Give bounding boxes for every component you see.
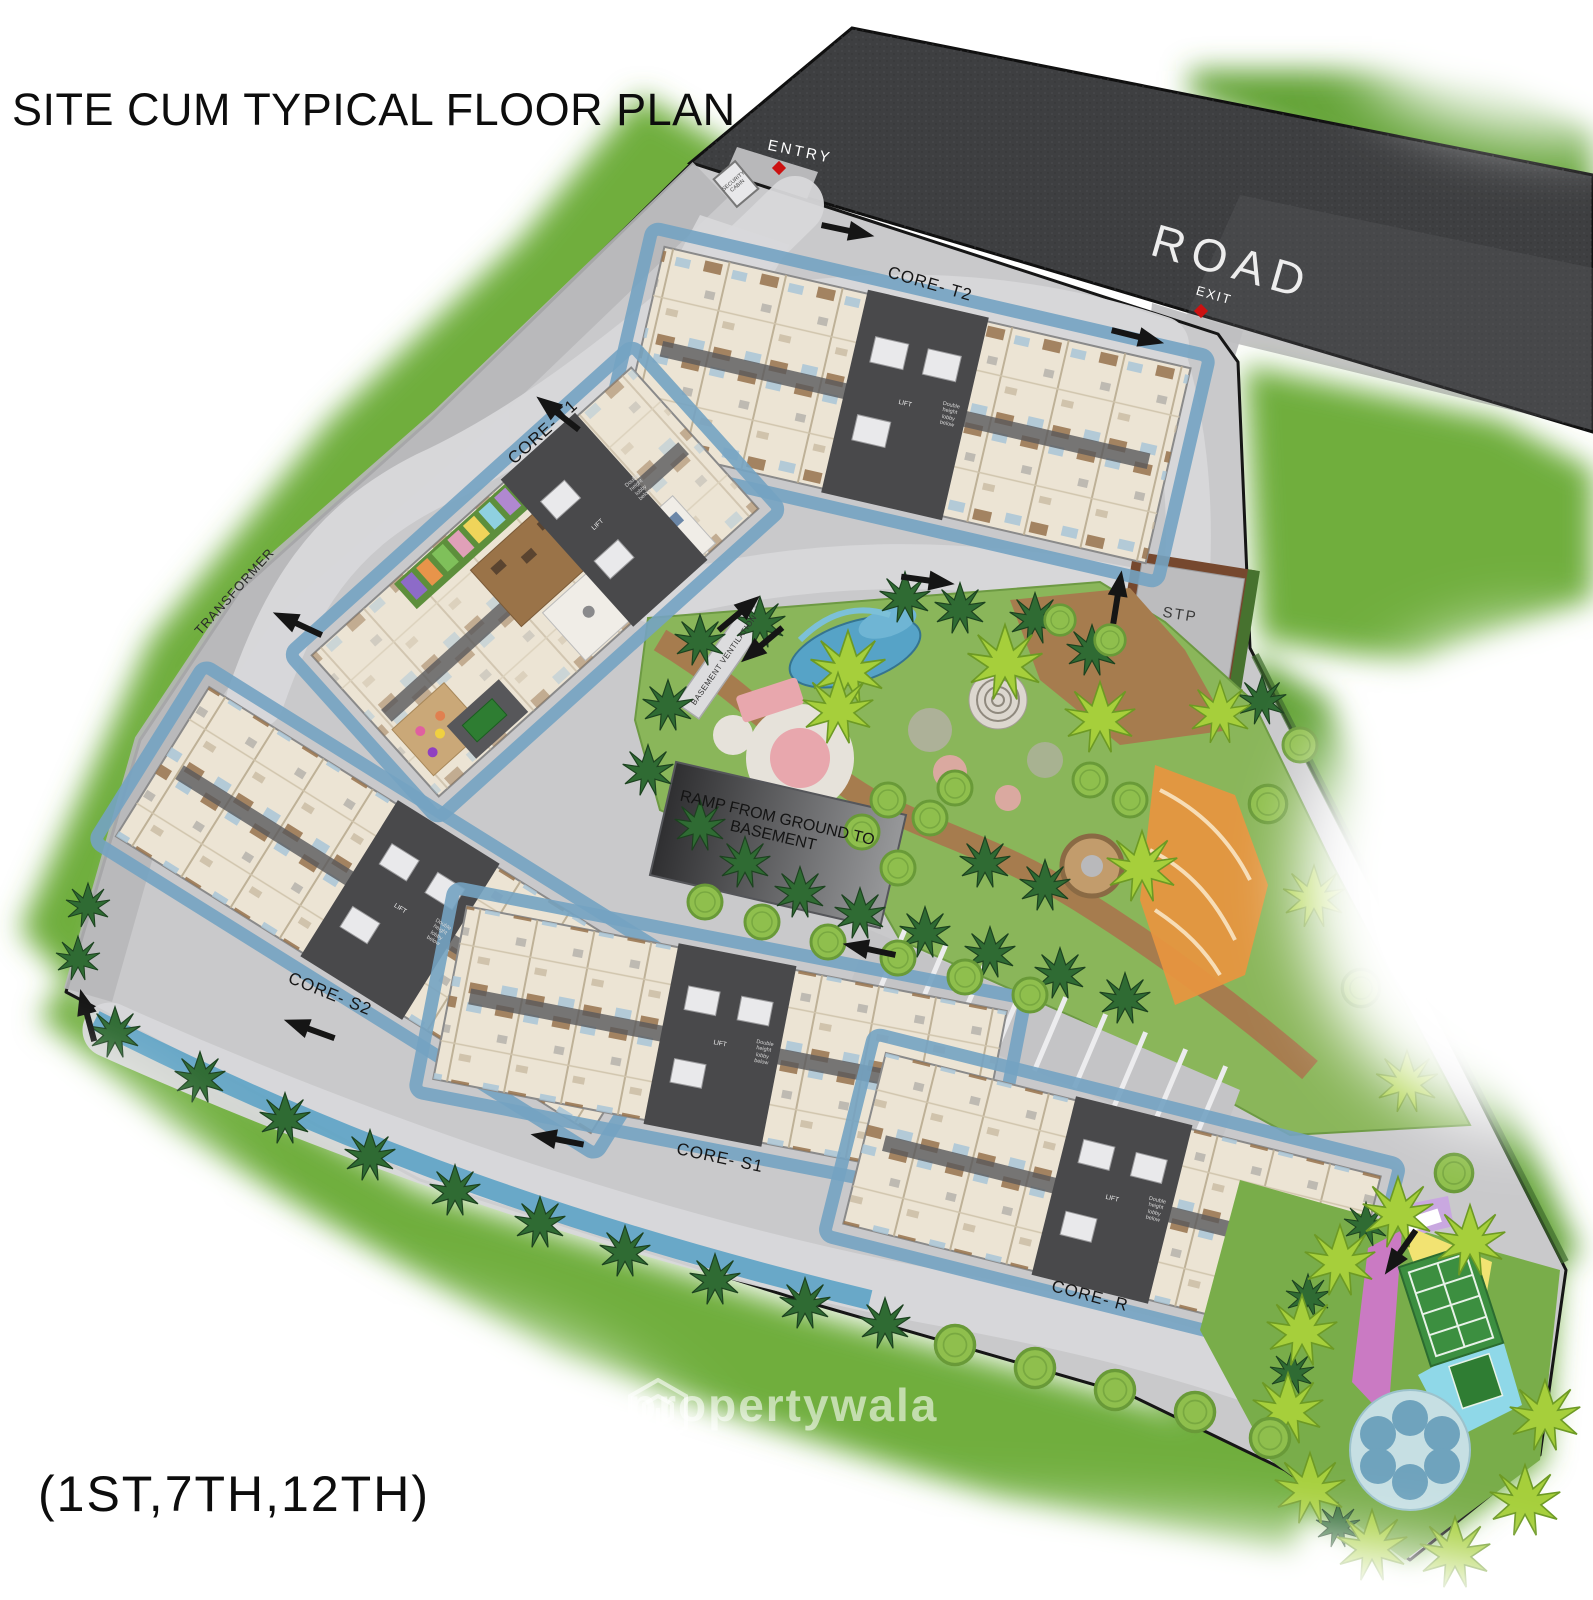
round-plaza <box>1062 836 1122 896</box>
propertywala-logo-icon <box>628 1378 688 1446</box>
site-plan-canvas <box>0 0 1593 1600</box>
site-plan-page: SITE CUM TYPICAL FLOOR PLAN (1ST,7TH,12T… <box>0 0 1593 1600</box>
flower-pool <box>1350 1390 1470 1510</box>
propertywala-watermark: propertywala <box>628 1378 938 1432</box>
double-height-label-s1: Double height lobby below <box>747 1038 779 1068</box>
page-title: SITE CUM TYPICAL FLOOR PLAN <box>12 84 736 136</box>
floors-note: (1ST,7TH,12TH) <box>38 1466 430 1524</box>
